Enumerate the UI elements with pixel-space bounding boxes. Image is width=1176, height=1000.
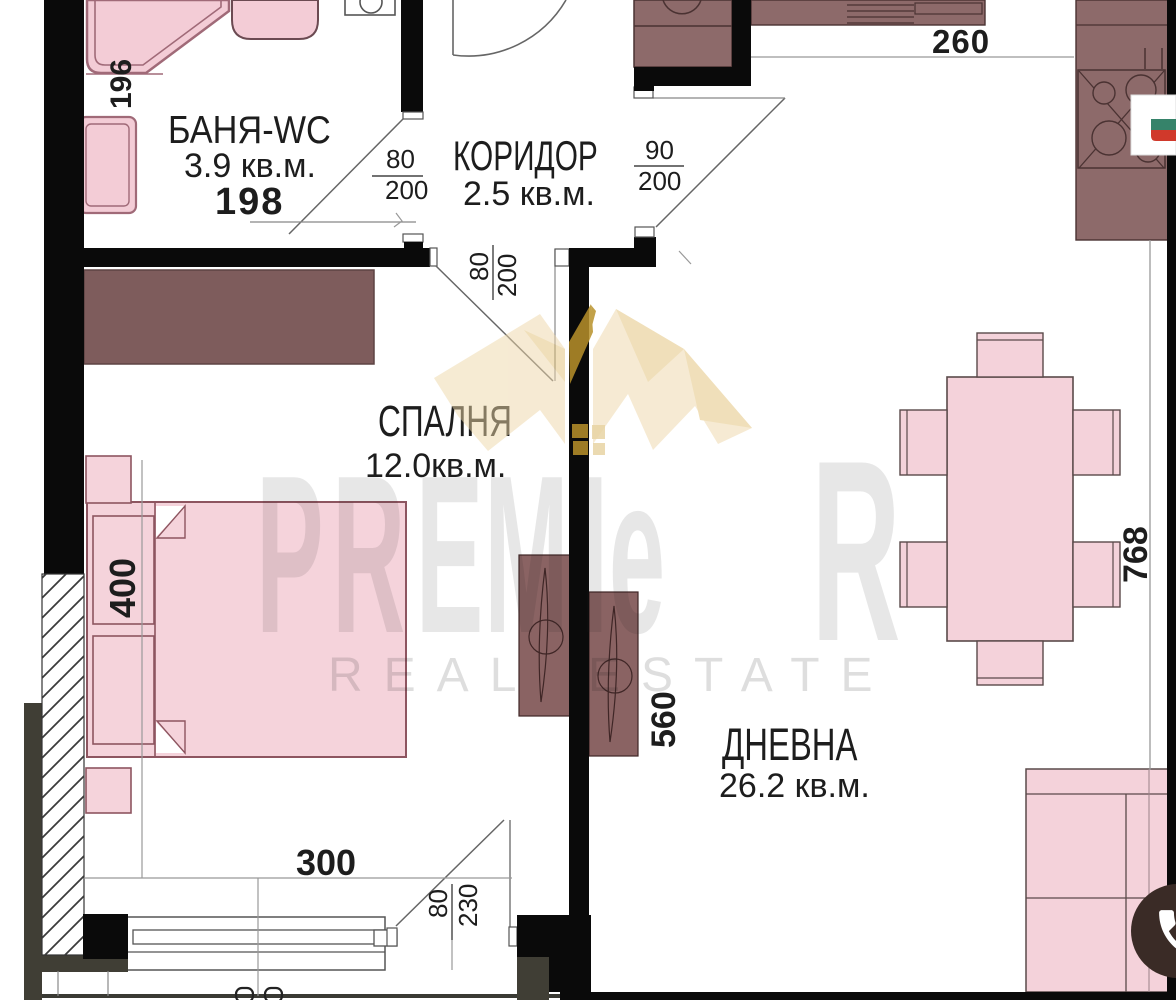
- svg-text:300: 300: [296, 842, 356, 883]
- svg-text:M: M: [484, 428, 568, 679]
- svg-text:230: 230: [453, 884, 483, 927]
- svg-text:260: 260: [932, 23, 990, 60]
- svg-text:80: 80: [386, 144, 415, 174]
- svg-text:200: 200: [492, 254, 522, 297]
- svg-text:e: e: [609, 428, 665, 679]
- svg-text:196: 196: [105, 59, 138, 109]
- svg-text:I: I: [580, 428, 608, 679]
- svg-text:200: 200: [385, 175, 428, 205]
- svg-text:ДНЕВНА: ДНЕВНА: [722, 720, 858, 770]
- svg-text:БАНЯ-WC: БАНЯ-WC: [168, 108, 331, 152]
- svg-text:P: P: [256, 428, 324, 679]
- svg-text:2.5 кв.м.: 2.5 кв.м.: [463, 175, 595, 213]
- svg-text:400: 400: [102, 558, 143, 618]
- svg-text:3.9 кв.м.: 3.9 кв.м.: [184, 147, 316, 185]
- svg-text:768: 768: [1117, 526, 1155, 583]
- svg-text:80: 80: [464, 252, 494, 281]
- svg-text:R: R: [332, 428, 405, 679]
- svg-text:198: 198: [215, 181, 284, 223]
- svg-text:200: 200: [638, 166, 681, 196]
- svg-text:80: 80: [423, 889, 453, 918]
- svg-text:90: 90: [645, 135, 674, 165]
- svg-text:REAL ESTATE: REAL ESTATE: [328, 649, 894, 702]
- svg-text:E: E: [416, 428, 484, 679]
- svg-text:КОРИДОР: КОРИДОР: [453, 132, 598, 179]
- svg-text:26.2 кв.м.: 26.2 кв.м.: [719, 767, 870, 805]
